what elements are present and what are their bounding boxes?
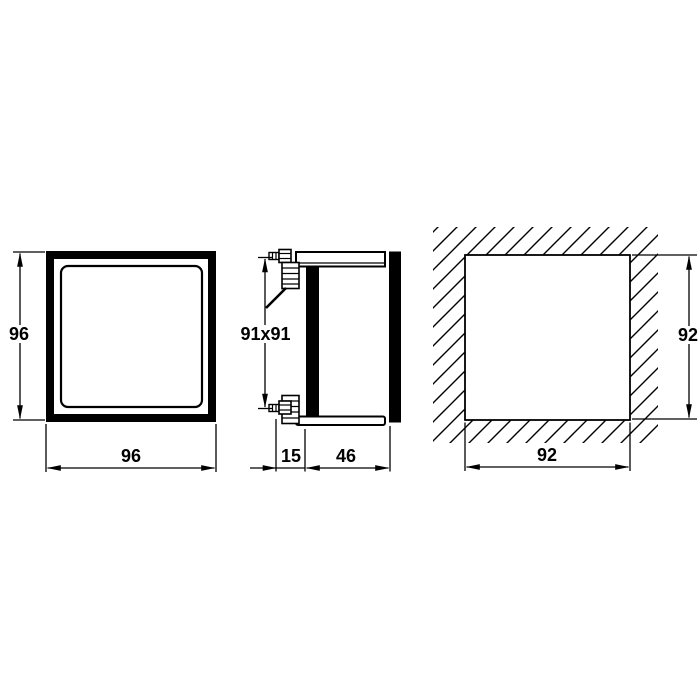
- terminal-screw-bottom: [269, 396, 299, 424]
- dim-label-front-width: 96: [121, 446, 141, 466]
- case-top: [296, 252, 385, 267]
- dim-label-front-height: 96: [9, 324, 29, 344]
- clamp-lever: [266, 288, 286, 308]
- screw-nut: [279, 250, 291, 263]
- dim-depths: 15 46: [250, 419, 390, 472]
- dim-front-height: 96: [5, 252, 45, 420]
- cutout-hole: [465, 255, 630, 420]
- dimension-drawing: 96 96: [0, 0, 700, 700]
- dim-front-width: 96: [46, 424, 216, 472]
- display-window: [61, 266, 202, 407]
- dim-label-cutout-width: 92: [537, 445, 557, 465]
- screw-thread: [269, 253, 279, 260]
- side-view: 91x91 15 46: [239, 250, 401, 472]
- terminal-screw-top: [266, 250, 299, 309]
- mounting-clamp: [306, 267, 319, 416]
- dim-label-mounting-depth: 46: [336, 446, 356, 466]
- dim-label-cutout-height: 92: [678, 325, 698, 345]
- front-view: 96 96: [5, 252, 216, 472]
- technical-drawing-canvas: 96 96: [0, 0, 700, 700]
- case-bottom: [296, 417, 385, 426]
- panel-cutout-view: 92 92: [433, 227, 699, 471]
- bezel-edge: [389, 252, 401, 423]
- screw-nut: [279, 401, 291, 414]
- dim-label-terminal-clearance: 15: [281, 446, 301, 466]
- dim-label-cutout-size: 91x91: [240, 324, 290, 344]
